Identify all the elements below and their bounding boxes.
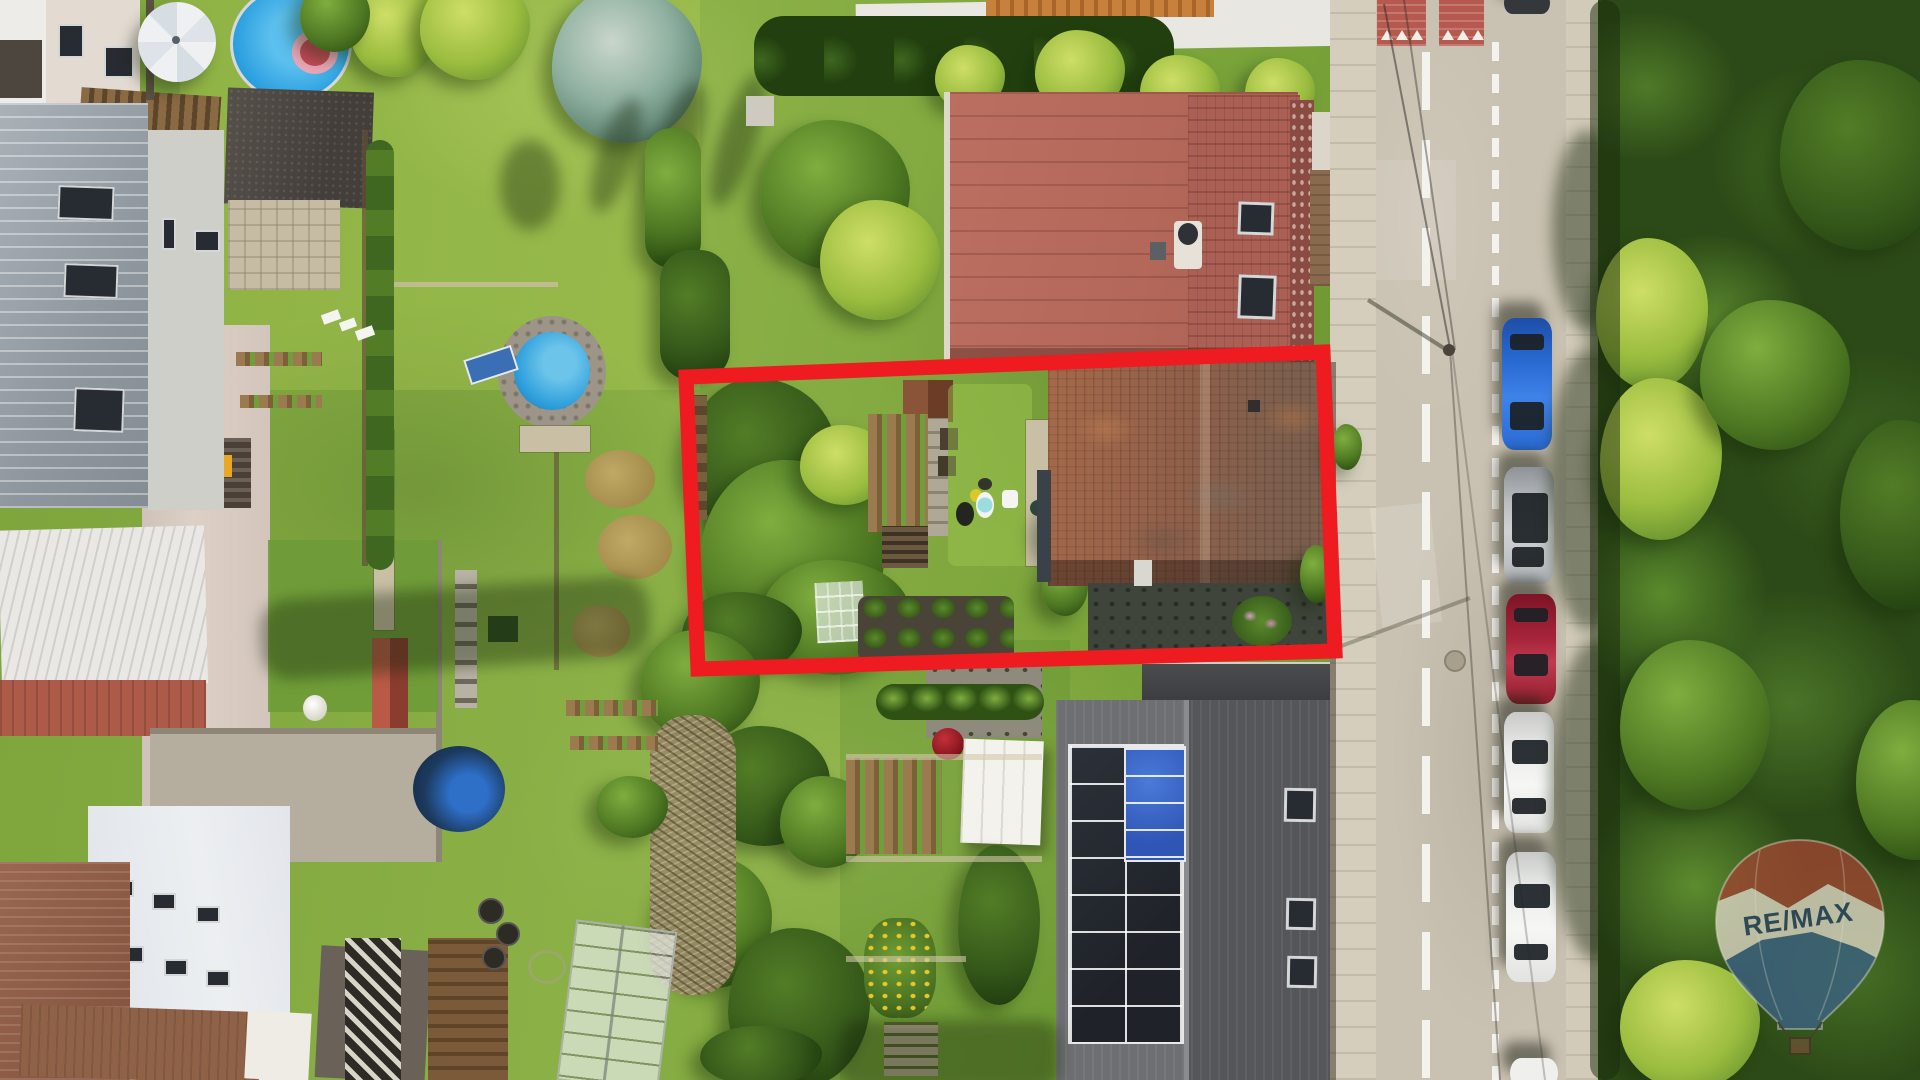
aerial-photo-scene: RE/MAX (0, 0, 1920, 1080)
property-outline-layer (0, 0, 1920, 1080)
property-outline (686, 352, 1335, 669)
